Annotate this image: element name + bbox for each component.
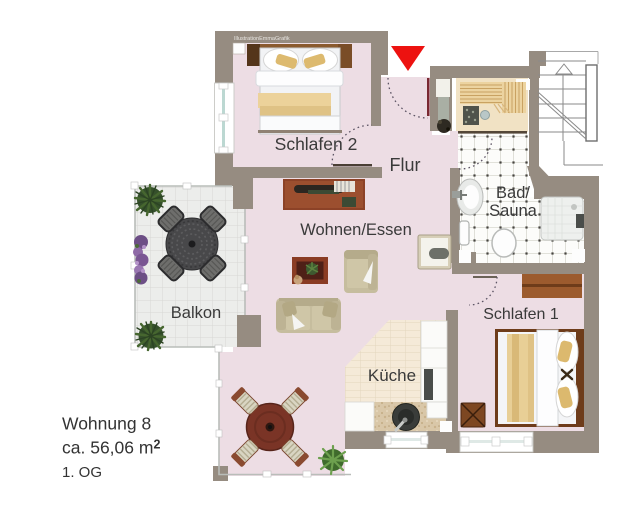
svg-text:Wohnung 8: Wohnung 8 xyxy=(62,414,151,434)
svg-text:ca. 56,06 m2: ca. 56,06 m2 xyxy=(62,438,160,458)
svg-text:Flur: Flur xyxy=(390,155,421,175)
svg-text:1. OG: 1. OG xyxy=(62,464,102,481)
svg-text:Schlafen 1: Schlafen 1 xyxy=(483,306,559,323)
svg-text:Küche: Küche xyxy=(368,366,416,385)
svg-text:Sauna: Sauna xyxy=(489,202,538,220)
svg-text:Balkon: Balkon xyxy=(171,304,221,322)
svg-text:Schlafen 2: Schlafen 2 xyxy=(275,134,358,154)
svg-text:Bad/: Bad/ xyxy=(496,184,530,202)
svg-text:Wohnen/Essen: Wohnen/Essen xyxy=(300,221,412,239)
svg-text:IllustrationEmmaGrafik: IllustrationEmmaGrafik xyxy=(234,36,290,42)
